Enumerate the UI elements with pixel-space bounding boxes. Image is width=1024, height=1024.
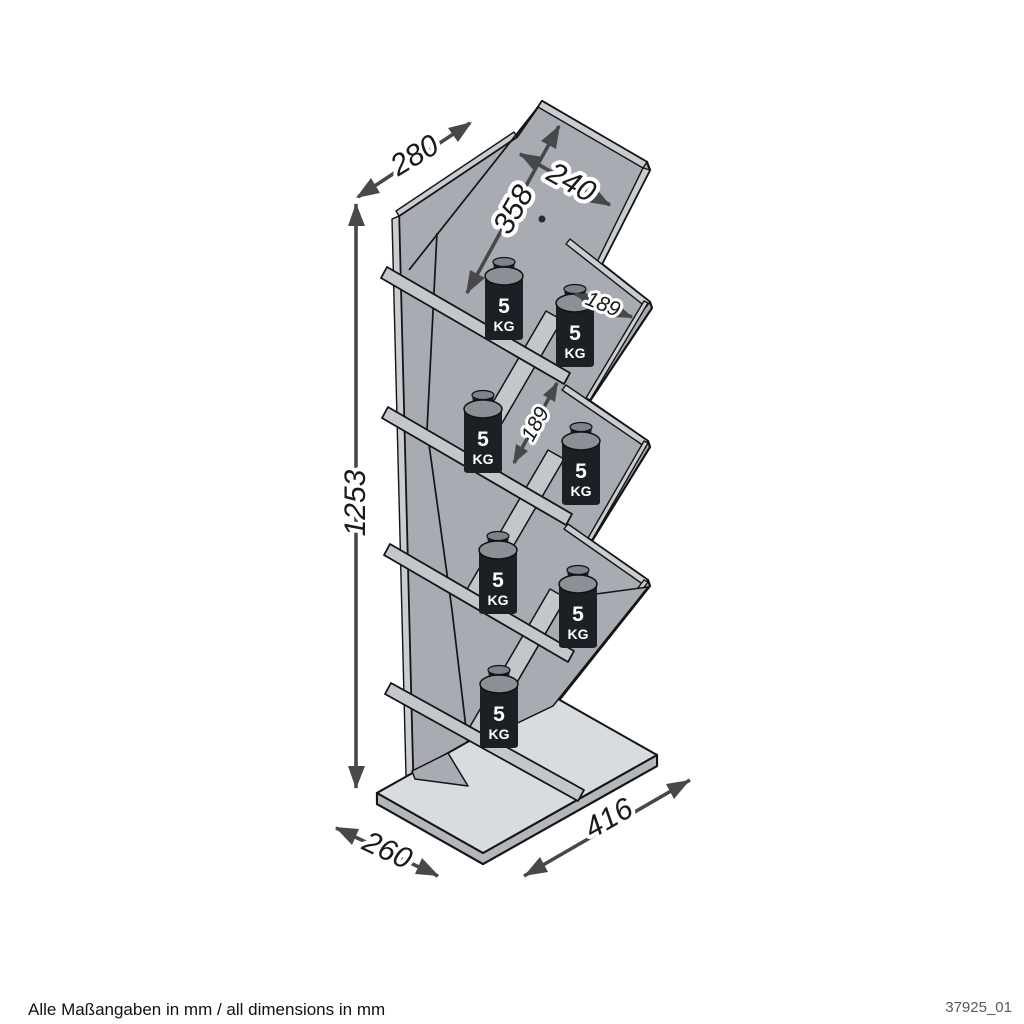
svg-text:KG: KG <box>568 626 589 642</box>
dimension-total-height: 1253 <box>339 203 372 789</box>
svg-text:KG: KG <box>494 318 515 334</box>
dimension-diagram-page: 5 KG 5 KG 5 KG <box>0 0 1024 1024</box>
weight-icon: 5 KG <box>562 423 600 506</box>
svg-text:5: 5 <box>575 460 587 483</box>
dim-label-1253: 1253 <box>339 469 372 536</box>
dim-label-260: 260 <box>357 825 418 877</box>
units-note: Alle Maßangaben in mm / all dimensions i… <box>28 1000 385 1020</box>
dimension-base-depth: 260 <box>335 825 439 877</box>
weight-icon: 5 KG <box>479 532 517 615</box>
svg-text:5: 5 <box>492 569 504 592</box>
svg-text:5: 5 <box>569 322 581 345</box>
svg-text:KG: KG <box>565 345 586 361</box>
shelf-dimension-drawing: 5 KG 5 KG 5 KG <box>0 0 1024 1024</box>
weight-icon: 5 KG <box>559 566 597 649</box>
weight-icon: 5 KG <box>464 391 502 474</box>
panel-hole <box>539 216 546 223</box>
weight-icon: 5 KG <box>485 258 523 341</box>
svg-text:KG: KG <box>571 483 592 499</box>
svg-text:KG: KG <box>473 451 494 467</box>
svg-text:KG: KG <box>489 726 510 742</box>
weight-icon: 5 KG <box>480 666 518 749</box>
svg-text:5: 5 <box>498 295 510 318</box>
drawing-code: 37925_01 <box>945 999 1012 1016</box>
svg-text:KG: KG <box>488 592 509 608</box>
svg-text:5: 5 <box>493 703 505 726</box>
svg-text:5: 5 <box>477 428 489 451</box>
svg-text:5: 5 <box>572 603 584 626</box>
